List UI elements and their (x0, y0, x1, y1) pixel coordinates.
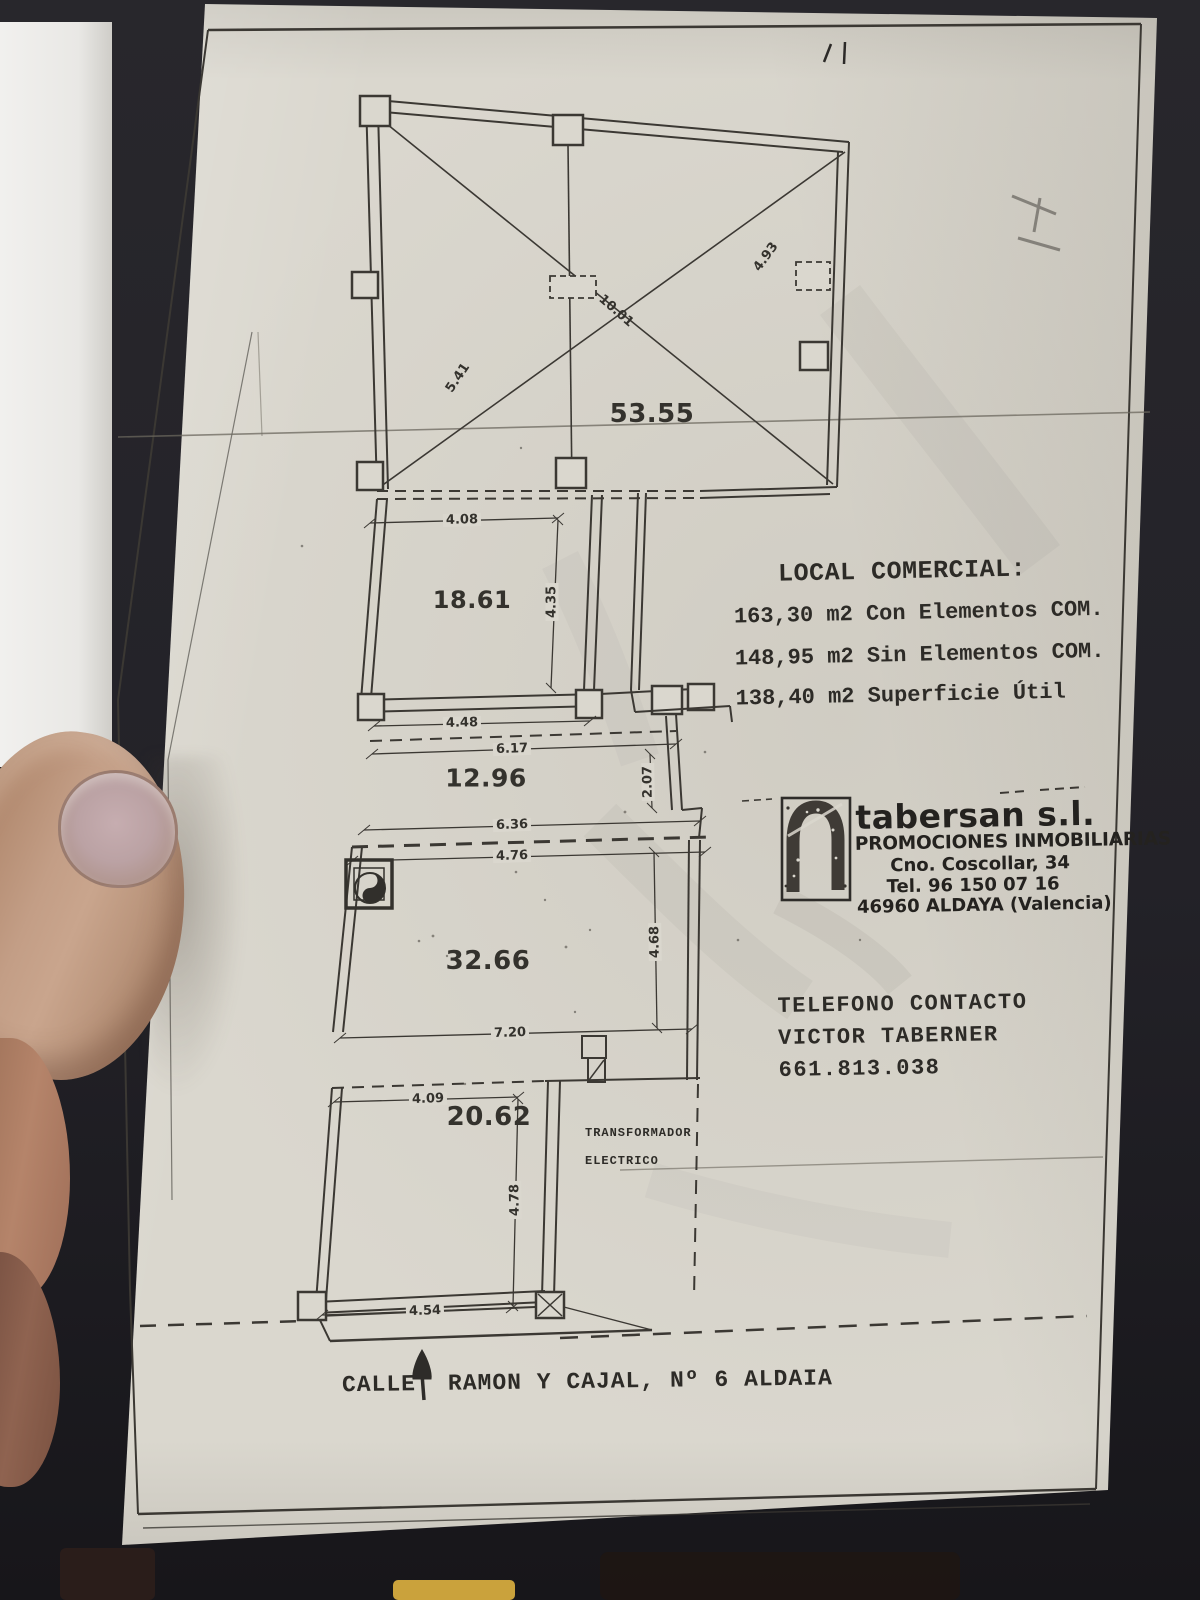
contact-phone: 661.813.038 (778, 1055, 940, 1083)
dim-4-78: 4.78 (508, 1181, 522, 1219)
dim-4-08: 4.08 (443, 513, 481, 527)
street-name: RAMON Y CAJAL, Nº 6 ALDAIA (448, 1365, 833, 1396)
area-label-hall: 53.55 (610, 399, 695, 429)
tabersan-logo (782, 798, 850, 900)
dim-4-68: 4.68 (648, 923, 662, 961)
drain-symbol (346, 860, 392, 908)
thumb-nail (58, 770, 178, 888)
dim-4-35: 4.35 (546, 583, 559, 621)
area-label-room-d: 20.62 (447, 1102, 532, 1132)
contact-name: VICTOR TABERNER (778, 1022, 999, 1051)
contact-heading: TELEFONO CONTACTO (777, 990, 1027, 1019)
room-b-dim-lines (346, 716, 711, 866)
pen-marks (824, 42, 1060, 250)
dim-6-17: 6.17 (493, 742, 532, 756)
transformer-label-line2: ELECTRICO (585, 1154, 659, 1168)
room-a-walls (358, 493, 714, 720)
sheet-border (118, 24, 1141, 1528)
info-title: LOCAL COMERCIAL: (778, 554, 1027, 588)
area-label-room-c: 32.66 (446, 946, 531, 976)
area-label-room-a: 18.61 (433, 586, 511, 614)
transformer-label-line1: TRANSFORMADOR (585, 1126, 692, 1140)
dim-4-48: 4.48 (443, 716, 481, 730)
toner-smudges (560, 300, 1040, 1240)
dim-4-76: 4.76 (493, 849, 532, 863)
structural-columns (352, 96, 830, 490)
company-city: 46960 ALDAYA (Valencia) (857, 892, 1112, 917)
dim-2-07: 2.07 (641, 763, 655, 801)
street-prefix: CALLE (342, 1371, 416, 1398)
dim-4-09: 4.09 (409, 1092, 448, 1106)
photo-stage: 53.55 18.61 12.96 32.66 20.62 4.08 4.35 … (0, 0, 1200, 1600)
dim-4-54: 4.54 (406, 1304, 445, 1318)
dim-6-36: 6.36 (493, 818, 532, 832)
dim-7-20: 7.20 (491, 1026, 530, 1040)
area-label-room-b: 12.96 (445, 764, 527, 793)
